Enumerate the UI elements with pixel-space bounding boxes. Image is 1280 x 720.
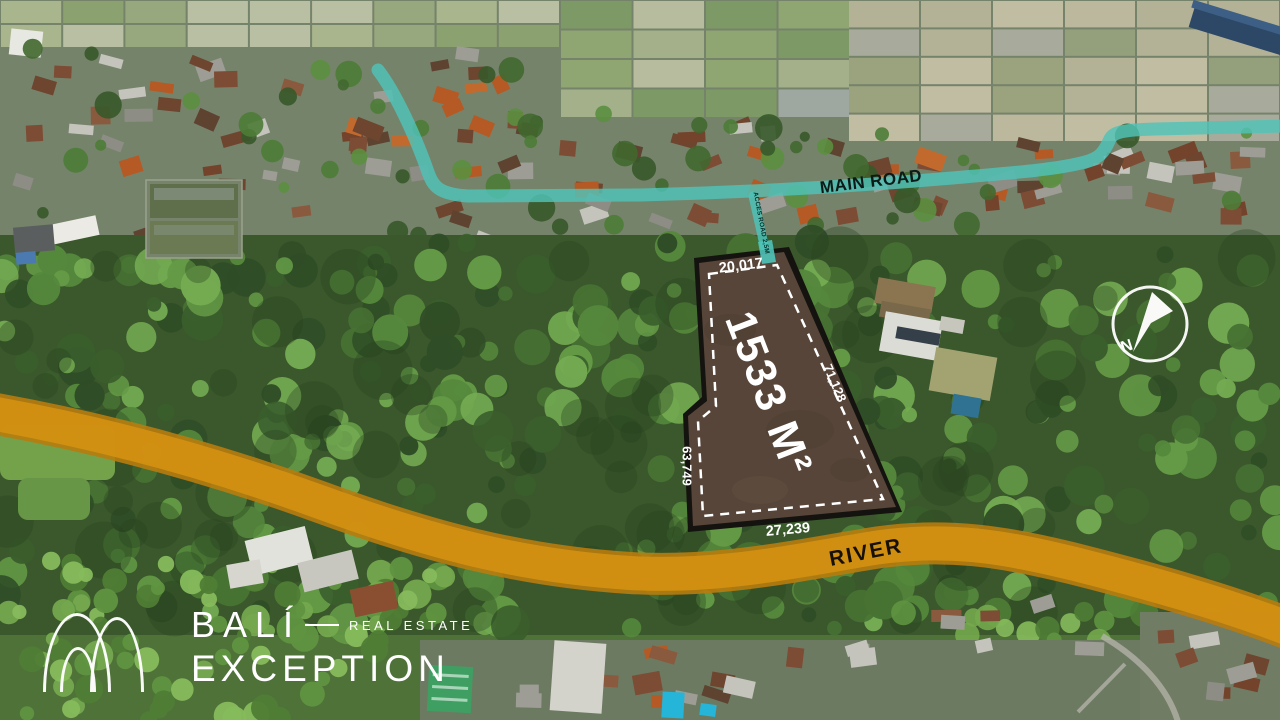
arch-shape bbox=[90, 617, 144, 692]
brand-logo: BALÍ REAL ESTATE EXCEPTION bbox=[38, 605, 473, 700]
logo-arches-icon bbox=[38, 605, 163, 700]
lawn-patch-2 bbox=[18, 478, 90, 520]
logo-brand-name: BALÍ bbox=[191, 607, 301, 643]
logo-brand-name-2: EXCEPTION bbox=[191, 650, 473, 687]
aerial-photo-canvas: MAIN ROAD ACCES ROAD 2,5M RIVER 20,017 7… bbox=[0, 0, 1280, 720]
logo-tagline: REAL ESTATE bbox=[349, 618, 473, 633]
logo-dash-divider bbox=[305, 624, 339, 626]
logo-text: BALÍ REAL ESTATE EXCEPTION bbox=[191, 605, 473, 687]
